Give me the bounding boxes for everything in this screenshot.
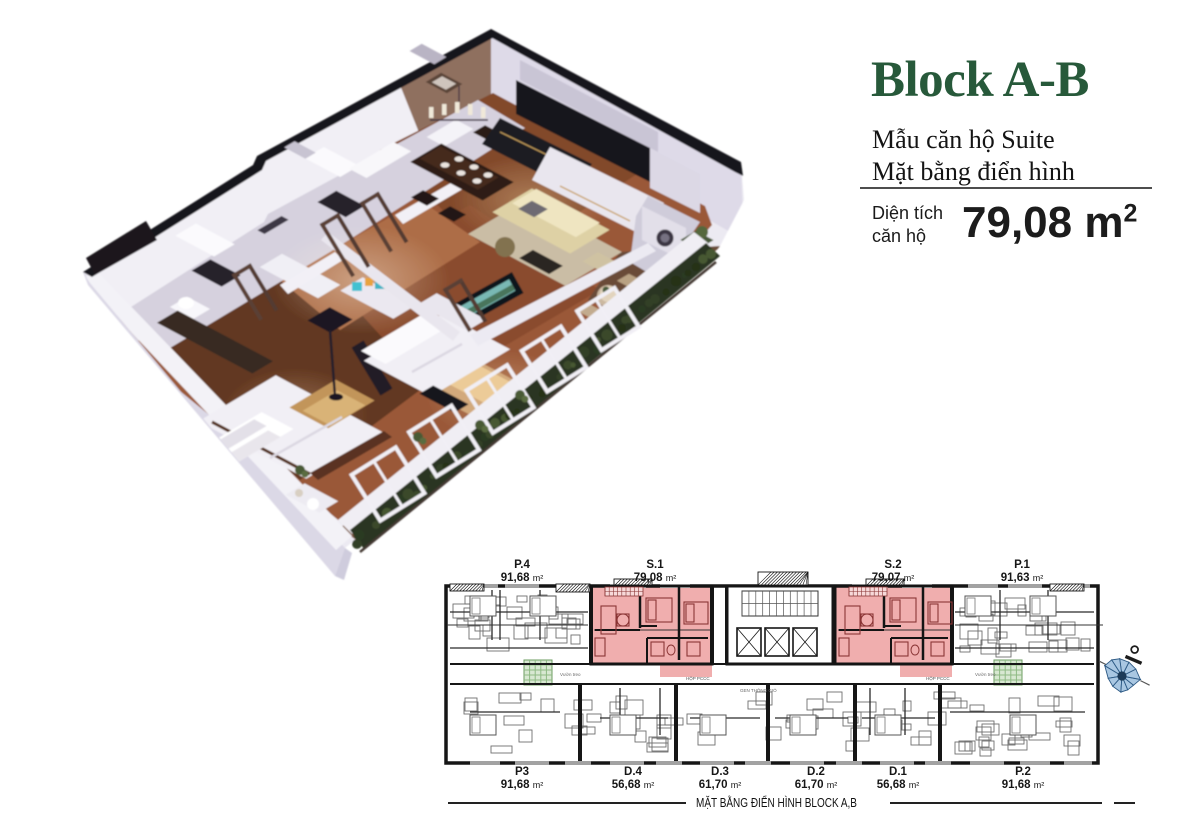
svg-text:GEN THÔNG GIÓ: GEN THÔNG GIÓ: [740, 687, 777, 693]
svg-text:Vườn treo: Vườn treo: [975, 672, 996, 677]
svg-text:Vườn treo: Vườn treo: [560, 672, 581, 677]
svg-text:HỘP PCCC: HỘP PCCC: [926, 675, 950, 681]
svg-text:HỘP PCCC: HỘP PCCC: [686, 675, 710, 681]
